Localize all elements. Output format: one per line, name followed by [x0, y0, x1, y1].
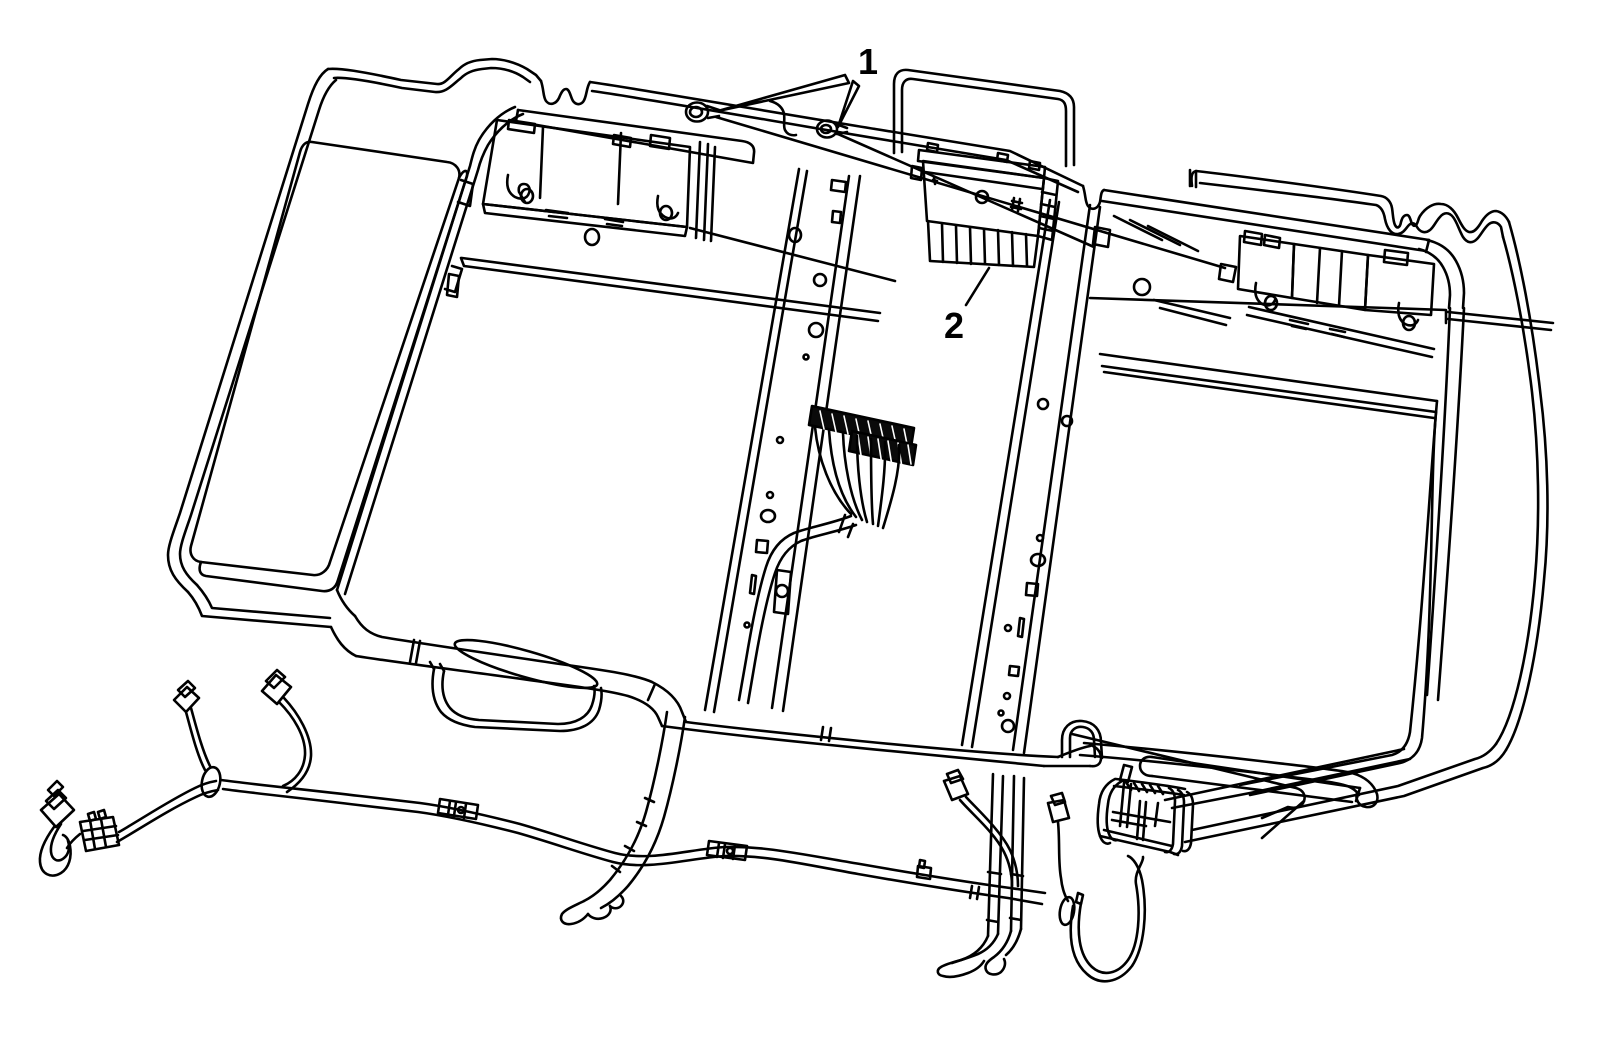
- svg-text:2: 2: [944, 305, 964, 346]
- svg-text:1: 1: [858, 41, 878, 82]
